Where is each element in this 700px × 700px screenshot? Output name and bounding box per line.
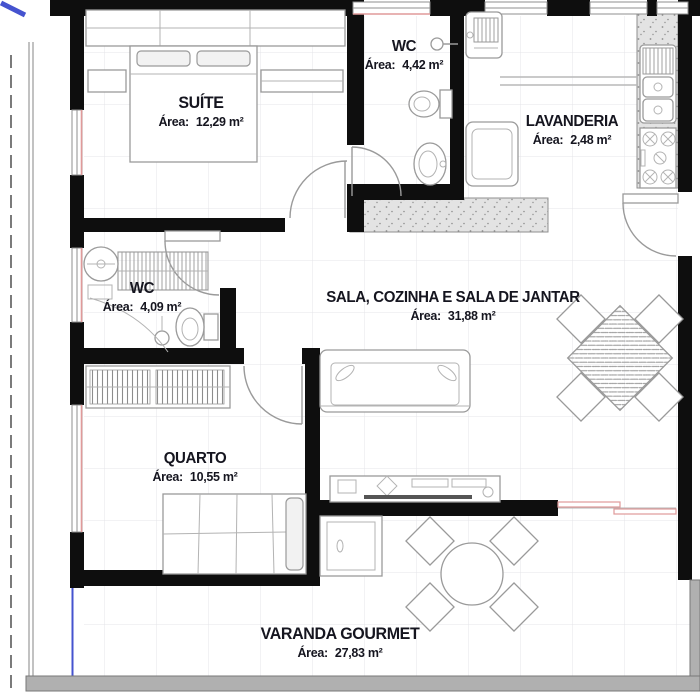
- site-boundary-lines: [1, 3, 73, 688]
- window-top-1: [353, 2, 430, 14]
- blue-corner-mark: [1, 3, 25, 15]
- room-name: VARANDA GOURMET: [261, 624, 420, 645]
- area-label: Área:: [158, 116, 188, 130]
- suite-closet: [86, 10, 345, 46]
- window-top-4: [657, 2, 688, 14]
- room-name: SUÍTE: [160, 93, 243, 114]
- room-label-suite: SUÍTE Área:12,29 m²: [158, 93, 243, 131]
- quarto-wardrobe: [86, 366, 230, 408]
- window-quarto: [72, 405, 82, 532]
- window-suite: [72, 110, 82, 175]
- area-value: 12,29 m²: [196, 116, 244, 130]
- area-value: 2,48 m²: [570, 133, 611, 147]
- tv-screen: [364, 495, 472, 499]
- suite-nightstand-left: [88, 70, 126, 92]
- washing-machine: [466, 122, 518, 186]
- area-label: Área:: [410, 309, 440, 323]
- area-value: 4,09 m²: [140, 300, 181, 314]
- room-name: SALA, COZINHA E SALA DE JANTAR: [326, 288, 579, 308]
- area-label: Área:: [365, 58, 395, 72]
- area-label: Área:: [533, 133, 563, 147]
- room-name: LAVANDERIA: [526, 112, 618, 132]
- area-label: Área:: [103, 300, 133, 314]
- laundry-sink: [466, 12, 502, 58]
- room-name: WC: [104, 279, 180, 299]
- room-name: QUARTO: [154, 449, 237, 469]
- area-value: 27,83 m²: [335, 647, 383, 661]
- window-wc: [72, 248, 82, 322]
- room-label-lavanderia: LAVANDERIA Área:2,48 m²: [524, 112, 619, 148]
- sofa: [320, 350, 470, 412]
- area-value: 4,42 m²: [402, 58, 443, 72]
- room-label-sala: SALA, COZINHA E SALA DE JANTAR Área:31,8…: [322, 288, 583, 324]
- toilet-suite-wc: [409, 90, 452, 118]
- stove-cooktop: [640, 128, 676, 188]
- toilet-social-wc: [176, 308, 218, 346]
- room-label-quarto: QUARTO Área:10,55 m²: [152, 449, 237, 485]
- varanda-round-table: [441, 543, 503, 605]
- window-top-3: [590, 2, 647, 14]
- room-label-wc-social: WC Área:4,09 m²: [103, 279, 181, 315]
- kitchen-sink: [640, 45, 676, 123]
- floor-plan-drawing: [0, 0, 700, 700]
- room-name: WC: [366, 37, 442, 57]
- suite-desk-right: [261, 70, 343, 92]
- area-label: Área:: [152, 470, 182, 484]
- tv-console: [330, 476, 500, 502]
- sink-suite-wc: [414, 143, 446, 185]
- room-label-wc-suite: WC Área:4,42 m²: [365, 37, 443, 73]
- floor-plan: SUÍTE Área:12,29 m² WC Área:4,42 m² LAVA…: [0, 0, 700, 700]
- area-value: 10,55 m²: [190, 470, 238, 484]
- room-label-varanda: VARANDA GOURMET Área:27,83 m²: [258, 624, 422, 662]
- varanda-bar-cabinet: [320, 516, 382, 576]
- quarto-single-bed: [163, 494, 306, 574]
- area-label: Área:: [297, 647, 327, 661]
- area-value: 31,88 m²: [448, 309, 496, 323]
- kitchen-peninsula-counter: [350, 198, 548, 232]
